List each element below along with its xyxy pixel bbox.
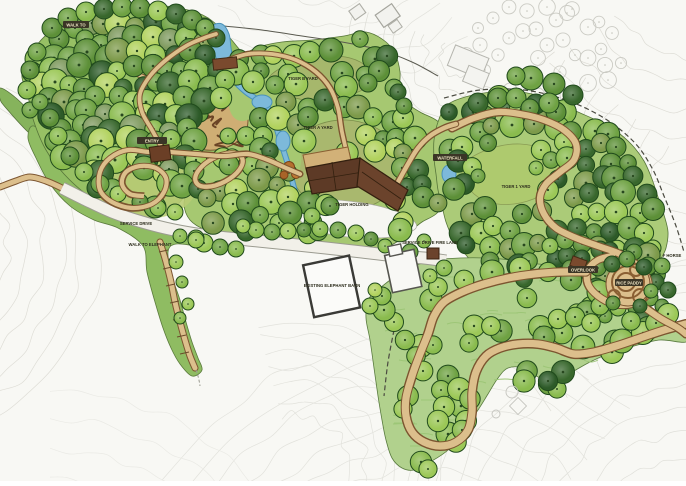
svg-text:TIGER 1 YARD: TIGER 1 YARD bbox=[502, 184, 531, 189]
svg-text:TIGER B YARD: TIGER B YARD bbox=[288, 76, 318, 81]
svg-text:F HORSE: F HORSE bbox=[663, 253, 682, 258]
svg-text:EXISTING ELEPHANT BARN: EXISTING ELEPHANT BARN bbox=[304, 283, 361, 288]
svg-text:SERVICE DRIVE: SERVICE DRIVE bbox=[120, 221, 152, 226]
svg-text:SERVICE DRIVE FIRE LANE: SERVICE DRIVE FIRE LANE bbox=[402, 240, 458, 245]
svg-text:WALK TO: WALK TO bbox=[66, 23, 86, 28]
svg-text:ENTRY: ENTRY bbox=[145, 139, 159, 144]
svg-text:WALK TO ELEPHANT: WALK TO ELEPHANT bbox=[129, 242, 172, 247]
svg-text:OVERLOOK: OVERLOOK bbox=[571, 268, 595, 273]
svg-text:TIGER A YARD: TIGER A YARD bbox=[303, 125, 332, 130]
svg-text:RICE PADDY: RICE PADDY bbox=[616, 281, 642, 286]
svg-text:TIGER HOLDING: TIGER HOLDING bbox=[335, 202, 368, 207]
svg-text:WATERFALL: WATERFALL bbox=[437, 156, 463, 161]
